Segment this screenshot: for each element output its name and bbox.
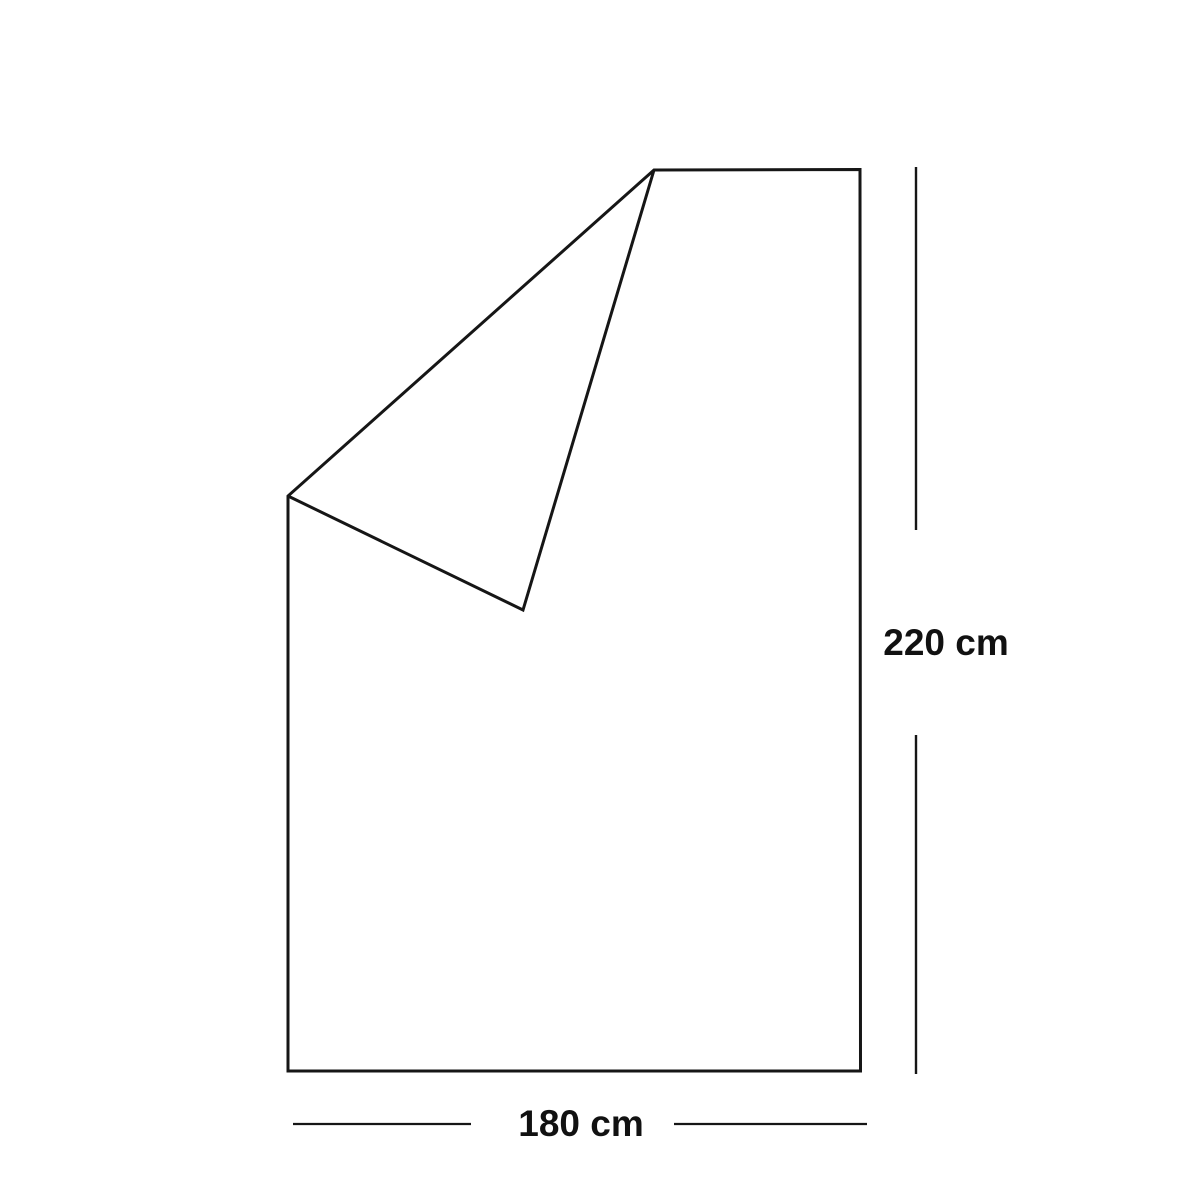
svg-text:220 cm: 220 cm <box>883 622 1009 663</box>
svg-text:180 cm: 180 cm <box>518 1103 644 1144</box>
